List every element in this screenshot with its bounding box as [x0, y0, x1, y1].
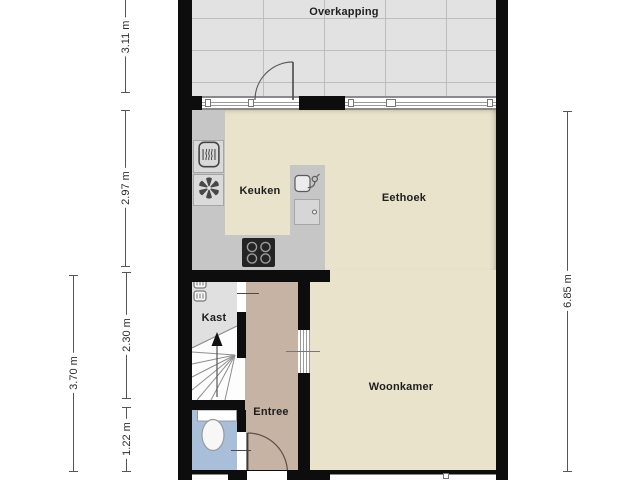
toilet-door-opening	[237, 432, 246, 470]
dimension-label-living-total: 6.85 m	[562, 271, 574, 311]
room-toilet-floor	[192, 410, 237, 470]
wall-kitchen-bottom	[178, 270, 330, 282]
dishwasher-icon	[312, 210, 317, 215]
dim-tick	[122, 398, 131, 399]
window-mullion-mark	[348, 99, 354, 107]
front-door-opening	[247, 471, 287, 480]
dim-tick	[69, 275, 78, 276]
dim-tick	[122, 272, 131, 273]
label-keuken: Keuken	[240, 185, 281, 197]
room-entree-floor	[245, 282, 298, 472]
floorplan-canvas: Overkapping Keuken Eethoek Kast Entree W…	[0, 0, 640, 480]
wall-kast-right	[237, 312, 246, 358]
window-mullion-mark	[205, 99, 211, 107]
dim-tick	[69, 471, 78, 472]
wall-entree-woonkamer-lower	[298, 373, 310, 470]
wall-rear-middle	[299, 96, 345, 110]
window-mullion-mark	[443, 473, 449, 479]
cooktop-icon	[242, 238, 275, 267]
label-woonkamer: Woonkamer	[369, 381, 434, 393]
front-window-woonkamer	[330, 474, 496, 480]
window-mullion-mark	[386, 99, 396, 107]
dishwasher-square	[294, 199, 320, 225]
dim-tick	[121, 266, 130, 267]
room-woonkamer-floor	[310, 282, 496, 472]
extractor-square	[193, 174, 224, 206]
woonkamer-door-leaf	[286, 351, 320, 352]
front-window-toilet	[192, 474, 228, 480]
label-eethoek: Eethoek	[382, 192, 426, 204]
wall-toilet-right	[237, 410, 246, 432]
wall-right	[496, 0, 508, 480]
dimension-label-kitchen: 2.97 m	[120, 168, 132, 208]
dim-tick	[122, 471, 131, 472]
window-mullion-mark	[487, 99, 493, 107]
sink-icon	[293, 170, 321, 198]
kast-door-leaf	[237, 293, 259, 294]
dim-tick	[121, 92, 130, 93]
dim-tick	[563, 471, 572, 472]
dimension-label-toilet: 1.22 m	[121, 419, 133, 459]
dim-tick	[121, 110, 130, 111]
window-mullion-mark	[248, 99, 254, 107]
dim-tick	[122, 407, 131, 408]
dim-tick	[563, 111, 572, 112]
toilet-door-leaf	[231, 450, 251, 451]
dimension-label-stairs: 2.30 m	[121, 315, 133, 355]
wall-rear-left-corner	[178, 96, 202, 110]
dimension-label-overkapping: 3.11 m	[120, 18, 132, 57]
label-kast: Kast	[202, 312, 227, 324]
oven-square	[193, 140, 224, 173]
wall-entree-woonkamer-upper	[298, 282, 310, 330]
kast-door-opening	[237, 282, 246, 312]
dimension-label-hall-total: 3.70 m	[68, 353, 80, 393]
label-overkapping: Overkapping	[309, 6, 378, 18]
wall-stairs-bottom	[178, 400, 245, 410]
room-kast-floor	[192, 282, 237, 400]
extractor-fan-icon	[196, 175, 222, 206]
oven-icon	[198, 141, 220, 173]
label-entree: Entree	[253, 406, 288, 418]
